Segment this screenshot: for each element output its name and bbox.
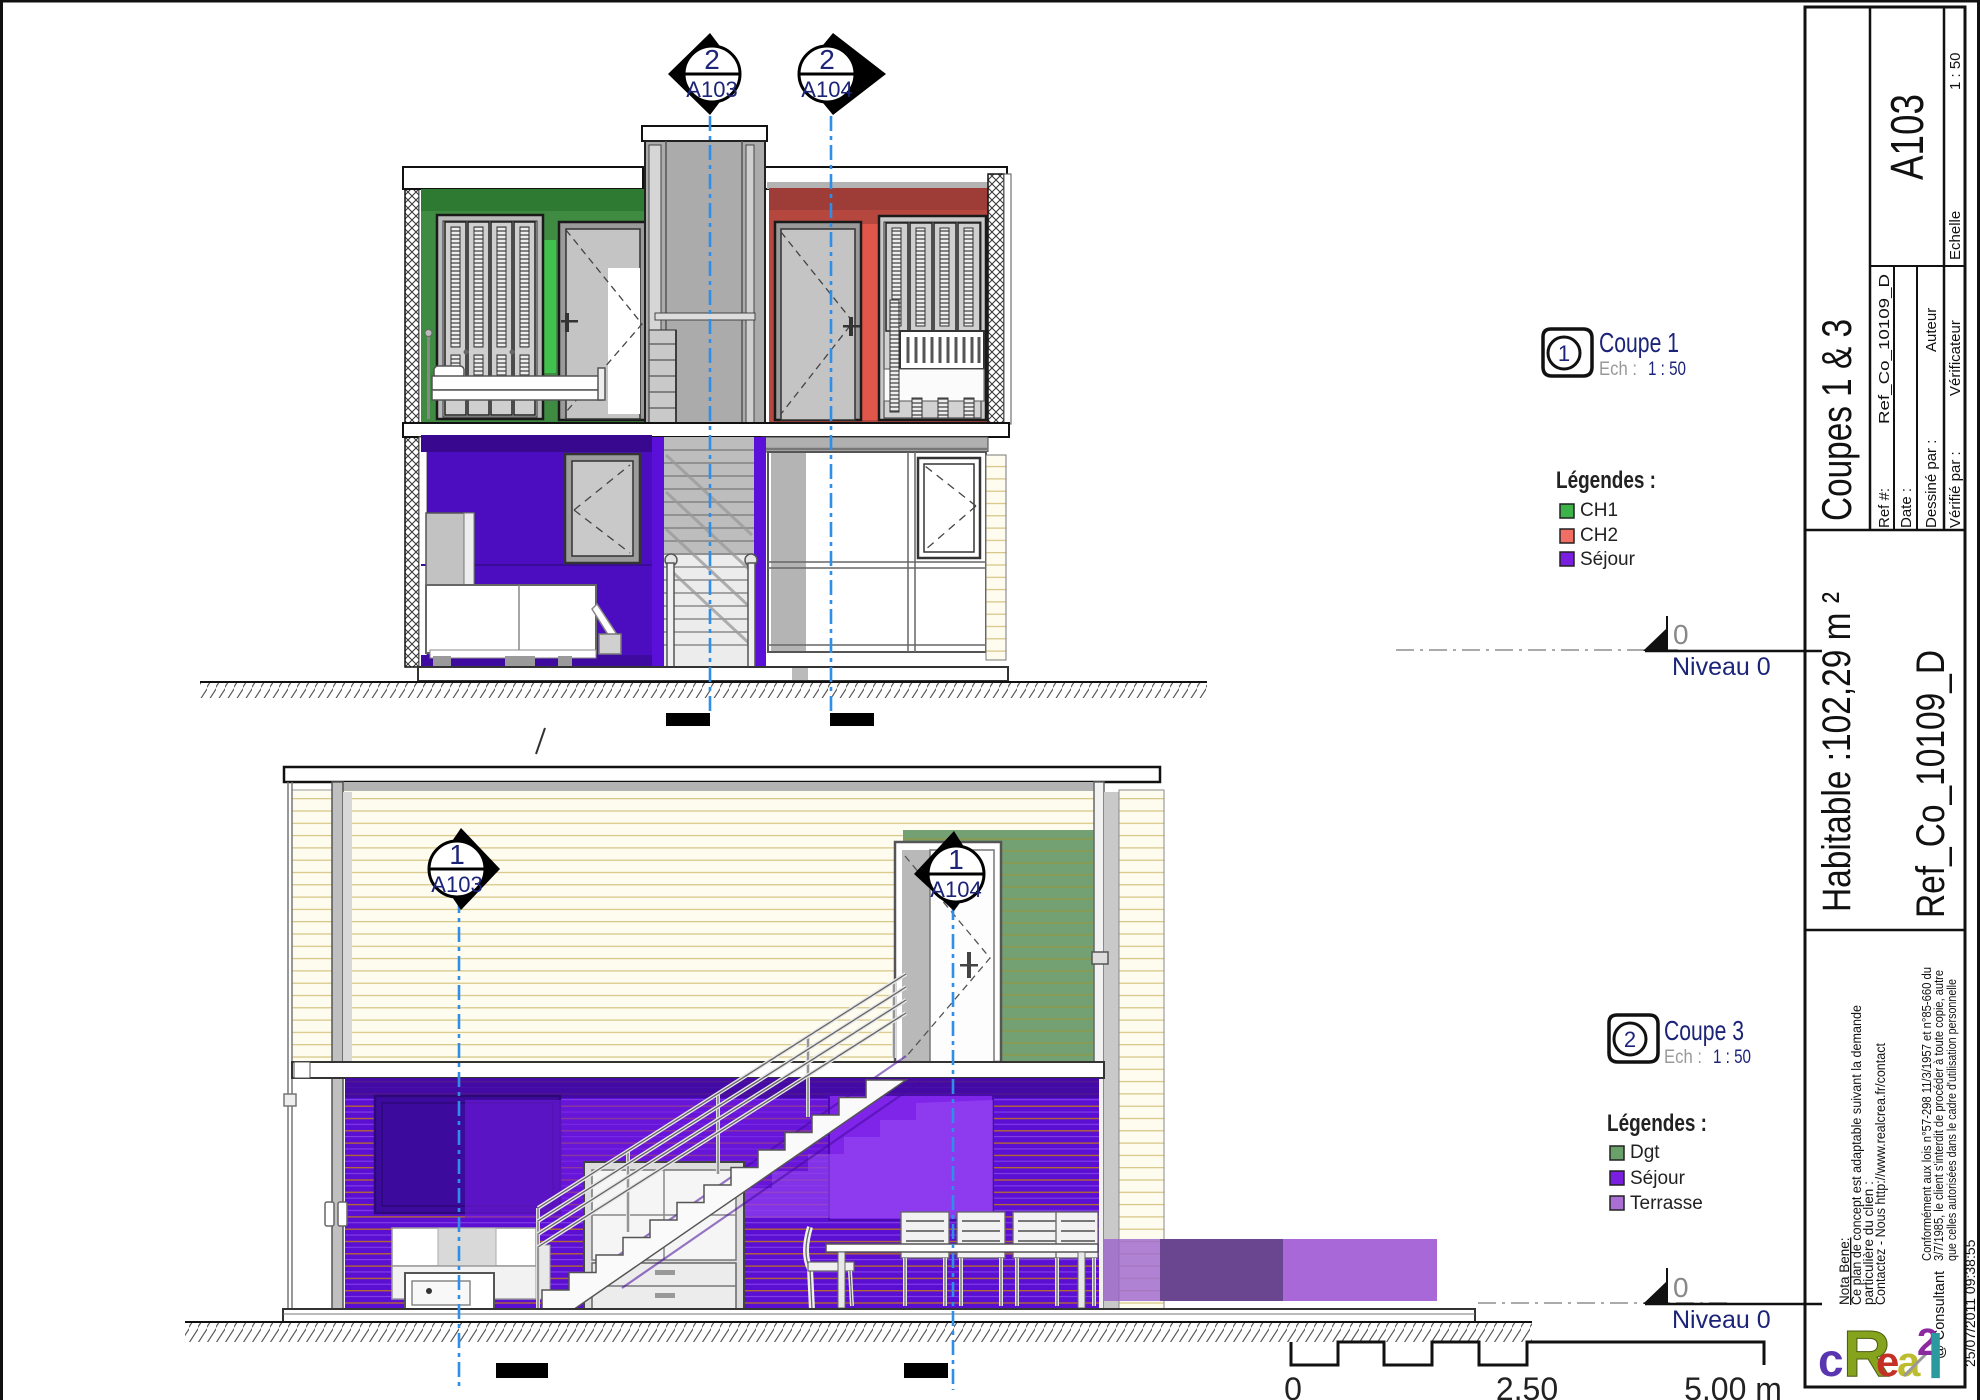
svg-text:Ech :: Ech :: [1599, 359, 1637, 380]
svg-text:1: 1: [948, 844, 964, 875]
svg-text:Date :: Date :: [1898, 488, 1915, 528]
svg-text:Vérificateur: Vérificateur: [1947, 320, 1964, 396]
svg-text:Légendes :: Légendes :: [1607, 1110, 1707, 1137]
svg-text:1: 1: [449, 839, 465, 870]
svg-text:Coupe 3: Coupe 3: [1664, 1015, 1744, 1046]
svg-text:e: e: [1876, 1338, 1899, 1385]
svg-text:2: 2: [704, 44, 720, 75]
svg-text:que celles autorisées dans le: que celles autorisées dans le cadre d'ut…: [1944, 979, 1959, 1261]
svg-text:Vérifié par :: Vérifié par :: [1947, 451, 1964, 528]
svg-text:1 : 50: 1 : 50: [1947, 52, 1964, 90]
svg-text:2: 2: [819, 44, 835, 75]
svg-text:Coupes 1 & 3: Coupes 1 & 3: [1813, 319, 1860, 521]
svg-text:l: l: [1927, 1323, 1944, 1392]
svg-text:Ref_Co_10109_D: Ref_Co_10109_D: [1909, 650, 1953, 918]
svg-text:25/07/2011 09:38:55: 25/07/2011 09:38:55: [1962, 1239, 1978, 1367]
svg-text:1 : 50: 1 : 50: [1713, 1047, 1751, 1068]
svg-text:5,00 m: 5,00 m: [1684, 1371, 1782, 1400]
svg-text:Echelle: Echelle: [1947, 211, 1964, 260]
svg-text:2,50: 2,50: [1496, 1371, 1558, 1400]
svg-text:0: 0: [1284, 1371, 1302, 1400]
svg-text:Ref_Co_10109_D: Ref_Co_10109_D: [1876, 274, 1893, 424]
svg-text:CH1: CH1: [1580, 500, 1618, 521]
svg-text:Ref #:: Ref #:: [1876, 488, 1893, 528]
svg-text:A104: A104: [801, 77, 852, 102]
svg-text:0: 0: [1673, 1272, 1689, 1303]
svg-text:Auteur: Auteur: [1923, 308, 1940, 352]
svg-text:2: 2: [1624, 1027, 1636, 1052]
svg-text:1: 1: [1558, 341, 1570, 366]
svg-text:Dgt: Dgt: [1630, 1142, 1660, 1163]
svg-text:Légendes :: Légendes :: [1556, 467, 1656, 494]
svg-text:Dessiné par :: Dessiné par :: [1923, 440, 1940, 528]
svg-text:0: 0: [1673, 619, 1689, 650]
svg-text:Niveau 0: Niveau 0: [1672, 653, 1771, 681]
svg-text:A103: A103: [431, 872, 482, 897]
svg-text:c: c: [1818, 1334, 1844, 1386]
svg-text:1 : 50: 1 : 50: [1648, 359, 1686, 380]
svg-text:Contactez - Nous http://www.re: Contactez - Nous http://www.realcrea.fr/…: [1873, 1043, 1888, 1305]
svg-text:Séjour: Séjour: [1580, 549, 1636, 570]
svg-text:Ech :: Ech :: [1664, 1047, 1702, 1068]
svg-text:Coupe 1: Coupe 1: [1599, 327, 1679, 358]
svg-text:Habitable :102,29 m ²: Habitable :102,29 m ²: [1815, 592, 1859, 912]
svg-text:CH2: CH2: [1580, 525, 1618, 546]
svg-text:Terrasse: Terrasse: [1630, 1193, 1703, 1214]
svg-text:A104: A104: [930, 877, 981, 902]
svg-text:A103: A103: [1881, 94, 1933, 180]
svg-text:A103: A103: [686, 77, 737, 102]
svg-text:Séjour: Séjour: [1630, 1168, 1686, 1189]
svg-text:Niveau 0: Niveau 0: [1672, 1306, 1771, 1334]
